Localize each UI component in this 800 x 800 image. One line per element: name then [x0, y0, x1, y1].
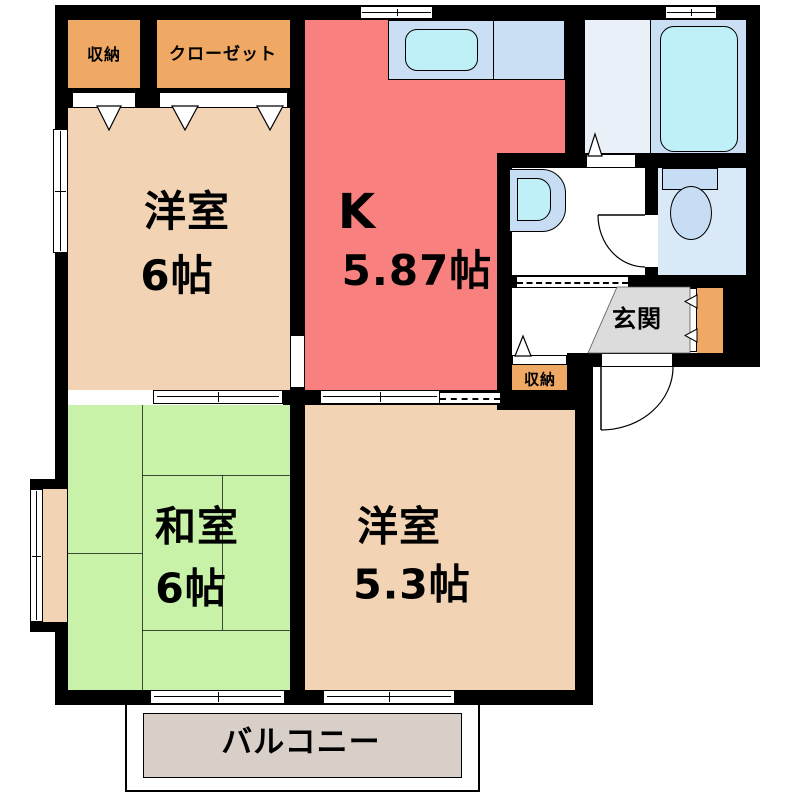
window-western1-left	[53, 129, 68, 253]
tatami-line	[68, 553, 142, 554]
closet-door-storage-top	[72, 92, 136, 108]
front-door-opening	[601, 353, 673, 367]
sliding-door-washroom-hall	[517, 276, 628, 287]
bathtub	[660, 26, 738, 152]
balcony-sliding-door-right	[323, 690, 455, 704]
bay-window-cap	[30, 479, 68, 489]
storage-hall-door	[512, 355, 567, 365]
counter-divider	[493, 20, 494, 80]
label-japanese-area: 6帖	[155, 569, 227, 610]
wall	[746, 5, 760, 367]
doorway-kitchen-western1	[291, 335, 304, 388]
washbasin-bowl	[517, 178, 551, 221]
label-western2-name: 洋室	[357, 507, 441, 548]
window-bath	[665, 6, 717, 19]
bath-divider	[650, 20, 651, 158]
floor-plan: 収納 クローゼット 洋室 6帖 K 5.87帖 和室 6帖 洋室 5.3帖 玄関…	[0, 0, 800, 800]
tatami-line	[142, 630, 290, 631]
label-japanese-name: 和室	[155, 507, 239, 548]
room-western-1	[68, 108, 290, 390]
label-entrance: 玄関	[612, 307, 662, 331]
label-balcony: バルコニー	[221, 728, 380, 759]
label-kitchen-name: K	[338, 188, 376, 236]
room-bath-washing-area	[585, 20, 650, 158]
door-triangle	[515, 336, 531, 356]
tatami-line	[142, 475, 290, 476]
bath-doorway	[587, 155, 635, 167]
closet-door-closet	[159, 92, 288, 108]
sliding-door-western1-japanese	[153, 390, 283, 404]
label-storage-hall: 収納	[524, 373, 556, 388]
window-kitchen	[360, 6, 433, 19]
toilet-bowl	[670, 186, 712, 240]
label-closet: クローゼット	[169, 47, 277, 64]
wall	[673, 353, 746, 367]
bay-window-cap	[30, 622, 68, 632]
label-western2-area: 5.3帖	[353, 565, 471, 606]
sliding-door-kitchen-western2	[320, 390, 440, 404]
bay-window	[30, 489, 43, 622]
bay-window-sill	[43, 489, 68, 622]
shoe-cabinet	[697, 286, 724, 353]
balcony-sliding-door-left	[150, 690, 285, 704]
label-storage-top: 収納	[87, 47, 121, 63]
front-door-swing-arc	[601, 367, 673, 430]
wall	[565, 5, 585, 158]
kitchen-sink	[405, 29, 478, 71]
open-wall-kitchen-western2	[440, 392, 500, 403]
tatami-line	[142, 405, 143, 690]
entrance-door-panel	[682, 288, 697, 352]
label-western1-name: 洋室	[144, 191, 230, 233]
label-kitchen-area: 5.87帖	[342, 250, 493, 292]
wall	[575, 395, 593, 705]
label-western1-area: 6帖	[140, 255, 213, 297]
toilet-doorway	[645, 215, 658, 267]
